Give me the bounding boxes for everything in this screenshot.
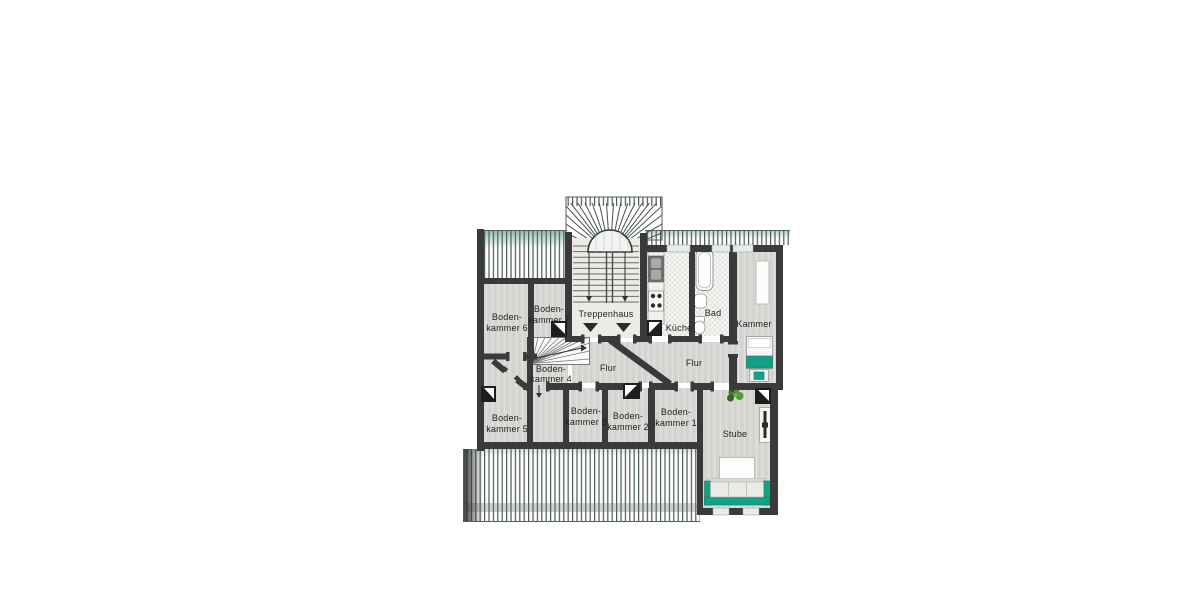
room-label-bodenkammer5: Boden- kammer 5 <box>486 413 528 434</box>
room-label-treppenhaus: Treppenhaus <box>579 309 634 319</box>
shelf-icon <box>760 408 771 443</box>
label-bodenkammer7-line2: kammer 7 <box>528 315 570 325</box>
window-stube-1 <box>713 508 729 515</box>
label-bodenkammer1-line1: Boden- <box>661 407 691 417</box>
room-label-kammer: Kammer <box>736 319 771 329</box>
bathtub-icon <box>696 250 713 291</box>
room-label-bodenkammer2: Boden- kammer 2 <box>607 411 649 432</box>
label-bodenkammer4-line1: Boden- <box>536 364 566 374</box>
floorplan-page: Boden- kammer 6 Boden- kammer 7 Treppenh… <box>0 0 1200 600</box>
window-top-2 <box>712 245 730 252</box>
roof-area-bottom <box>463 449 700 522</box>
chimney-icon-kueche <box>647 320 662 336</box>
label-bodenkammer2-line1: Boden- <box>613 411 643 421</box>
chimney-icon-bodenkammer2 <box>623 383 640 399</box>
table-icon <box>720 458 755 480</box>
label-bodenkammer3-line1: Boden- <box>571 406 601 416</box>
label-bodenkammer7-line1: Boden- <box>534 304 564 314</box>
washbasin-icon <box>695 294 707 308</box>
room-label-stube: Stube <box>723 429 748 439</box>
room-label-bodenkammer6: Boden- kammer 6 <box>486 312 528 333</box>
stool-icon <box>750 370 769 382</box>
chimney-icon-stube <box>755 388 771 404</box>
bed-icon <box>747 337 773 369</box>
room-label-bodenkammer1: Boden- kammer 1 <box>655 407 697 428</box>
room-label-bodenkammer3: Boden- kammer 3 <box>565 406 607 427</box>
floorplan-attic: Boden- kammer 6 Boden- kammer 7 Treppenh… <box>0 0 1200 600</box>
window-stube-2 <box>743 508 759 515</box>
label-bodenkammer1-line2: kammer 1 <box>655 418 697 428</box>
room-label-bodenkammer4: Boden- kammer 4 <box>530 364 572 384</box>
wardrobe-icon <box>756 261 769 304</box>
roof-strip-top-right <box>645 231 790 246</box>
window-top-1 <box>667 245 690 252</box>
kitchen-sink-icon <box>649 256 664 282</box>
room-label-bad: Bad <box>705 308 722 318</box>
room-label-flur-left: Flur <box>600 363 616 373</box>
label-bodenkammer4-line2: kammer 4 <box>530 374 572 384</box>
chimney-icon-bodenkammer5 <box>481 386 496 402</box>
room-label-bodenkammer7: Boden- kammer 7 <box>528 304 570 325</box>
label-bodenkammer2-line2: kammer 2 <box>607 422 649 432</box>
toilet-icon <box>694 317 705 335</box>
sofa-icon <box>705 479 770 506</box>
label-bodenkammer5-line2: kammer 5 <box>486 424 528 434</box>
label-bodenkammer5-line1: Boden- <box>492 413 522 423</box>
room-label-kueche: Küche <box>666 323 693 333</box>
label-bodenkammer3-line2: kammer 3 <box>565 417 607 427</box>
stove-icon <box>649 291 664 311</box>
room-label-flur-right: Flur <box>686 358 702 368</box>
floor-flur <box>572 342 737 383</box>
label-bodenkammer6-line2: kammer 6 <box>486 323 528 333</box>
roof-strip-top-left <box>484 231 567 279</box>
kitchen-fixtures <box>648 252 664 324</box>
window-top-3 <box>733 245 753 252</box>
label-bodenkammer6-line1: Boden- <box>492 312 522 322</box>
